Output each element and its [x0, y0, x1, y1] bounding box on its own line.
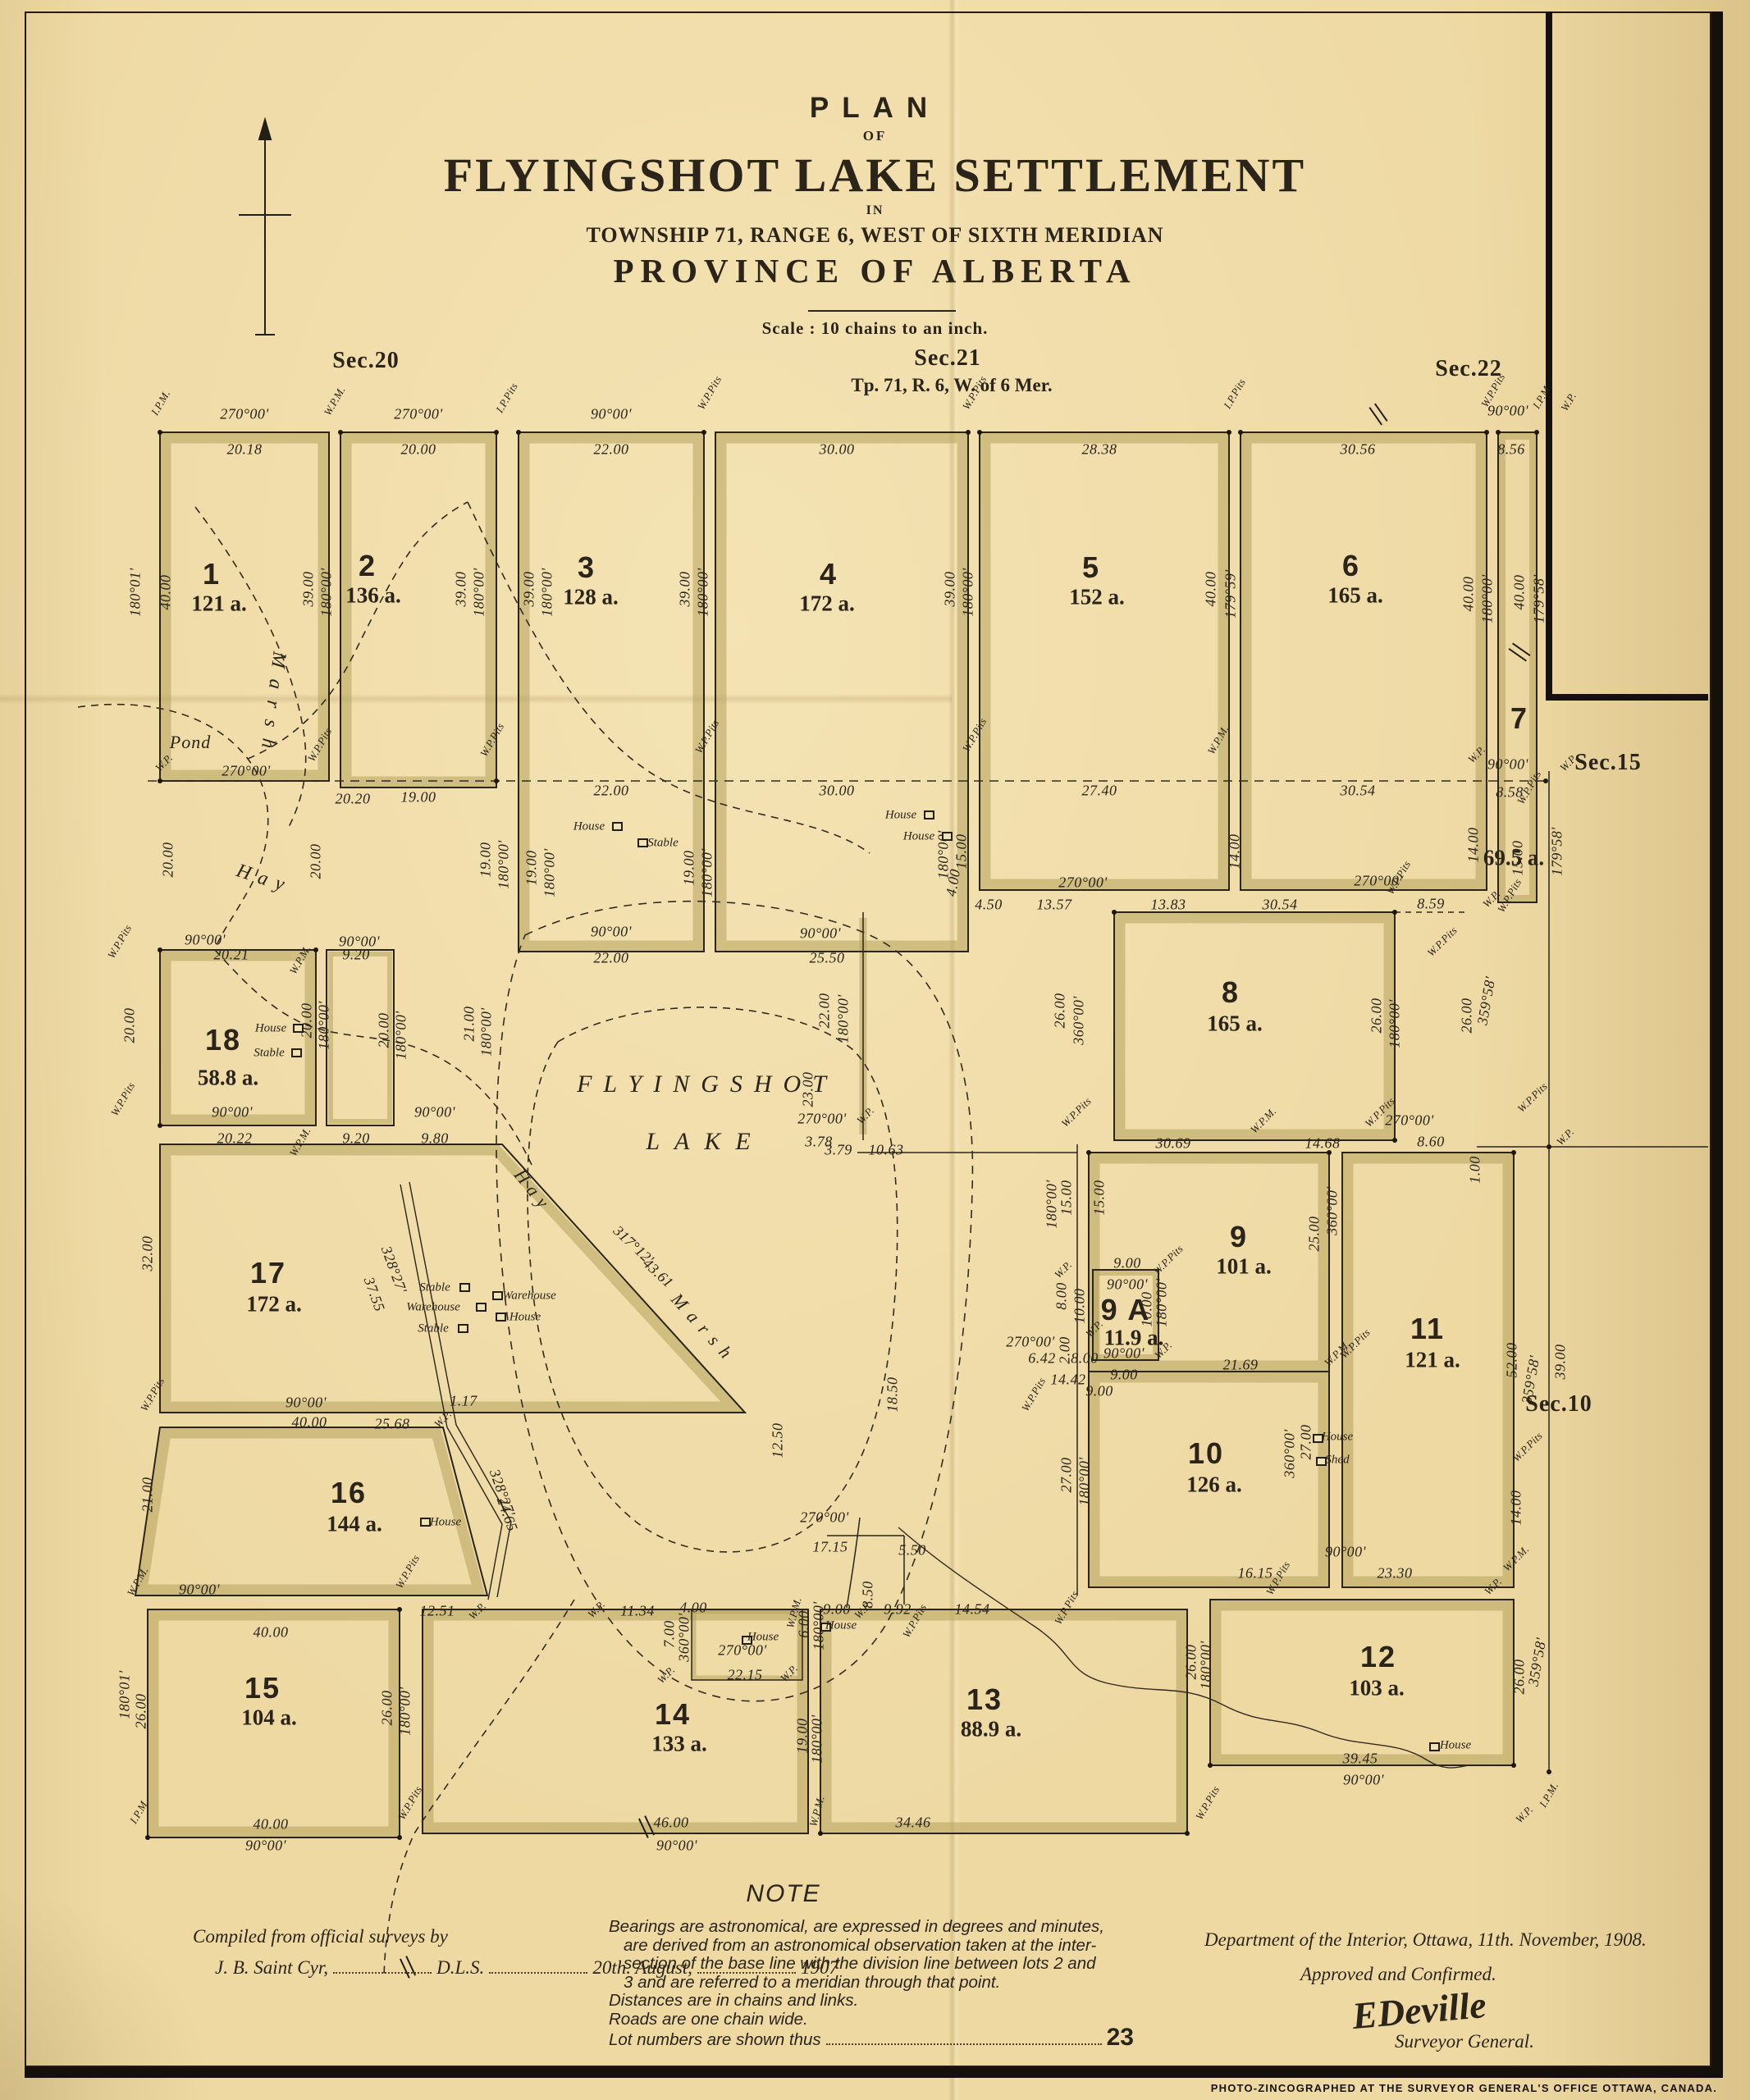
sample-lot-number: 23 — [1107, 2029, 1134, 2047]
dimension-label: 19.00 — [681, 851, 698, 886]
dimension-label: 180°01' — [117, 1670, 134, 1719]
dimension-label: 90°00' — [286, 1395, 327, 1412]
building-square — [942, 832, 953, 841]
lot-number: 17 — [250, 1256, 286, 1290]
place-name: Hay — [509, 1165, 557, 1217]
department-line: Department of the Interior, Ottawa, 11th… — [1204, 1929, 1647, 1951]
place-name: FLYINGSHOT — [577, 1071, 838, 1098]
dimension-label: 24.65 — [493, 1495, 521, 1534]
dimension-label: 39.00 — [1552, 1344, 1570, 1380]
dimension-label: 40.00 — [1460, 577, 1478, 612]
dimension-label: 270°00' — [1385, 1112, 1434, 1130]
dimension-label: 180°00' — [1479, 574, 1496, 623]
imprint-line: PHOTO-ZINCOGRAPHED AT THE SURVEYOR GENER… — [1211, 2082, 1717, 2094]
dimension-label: 21.00 — [461, 1007, 478, 1042]
note-line: Roads are one chain wide. — [609, 2011, 1183, 2029]
dimension-label: 26.00 — [1459, 998, 1476, 1034]
building-label: Stable — [647, 837, 679, 851]
building-label: Warehouse — [502, 1290, 556, 1303]
note-line: are derived from an astronomical observa… — [609, 1937, 1183, 1956]
survey-marker-label: W.P. — [153, 751, 176, 774]
dimension-label: 18.50 — [884, 1377, 902, 1413]
dimension-label: 5.50 — [898, 1542, 926, 1559]
dimension-label: 8.56 — [1497, 441, 1525, 459]
dimension-label: 21.69 — [1223, 1357, 1259, 1374]
dimension-label: 40.00 — [292, 1414, 327, 1431]
survey-marker-label: W.P.Pits — [1510, 1429, 1545, 1464]
dimension-label: 25.00 — [1306, 1217, 1323, 1252]
dotted-leader — [826, 2043, 1102, 2045]
dimension-label: 40.00 — [158, 575, 175, 610]
dimension-label: 23.30 — [1378, 1565, 1413, 1582]
dimension-label: 270°00' — [1006, 1334, 1055, 1351]
dotted-leader — [333, 1972, 432, 1974]
lot-area: 136 a. — [345, 583, 401, 609]
lot-area: 121 a. — [191, 591, 247, 617]
dimension-label: 8.00 — [1053, 1282, 1071, 1310]
dimension-label: 90°00' — [591, 924, 632, 941]
note-line: Bearings are astronomical, are expressed… — [609, 1918, 1183, 1937]
lot-number: 7 — [1510, 701, 1528, 736]
survey-marker-label: W.P.M. — [322, 384, 349, 418]
survey-marker-label: W.P.Pits — [395, 1784, 425, 1823]
dimension-label: 90°00' — [179, 1582, 220, 1599]
dimension-label: 360°00' — [1324, 1186, 1341, 1235]
dimension-label: 20.21 — [214, 947, 249, 964]
dimension-label: 180°00' — [1198, 1641, 1215, 1690]
dimension-label: 30.69 — [1156, 1135, 1191, 1153]
survey-marker-label: W.P.M. — [287, 943, 314, 976]
lot-number: 8 — [1222, 975, 1240, 1010]
survey-marker-label: I.P.M. — [148, 388, 173, 418]
lot-area: 152 a. — [1069, 585, 1125, 610]
dimension-label: 9.92 — [884, 1601, 912, 1618]
dimension-label: 9.20 — [342, 1130, 370, 1148]
dimension-label: 40.00 — [254, 1624, 289, 1641]
survey-marker-label: W.P.Pits — [1150, 1242, 1186, 1277]
building-label: House — [885, 809, 916, 823]
approved-line: Approved and Confirmed. — [1300, 1964, 1496, 1985]
dimension-label: 19.00 — [523, 851, 541, 886]
survey-marker-label: W.P. — [1513, 1803, 1536, 1826]
dimension-label: 22.15 — [728, 1667, 763, 1684]
building-label: House — [430, 1516, 461, 1530]
survey-marker-label: W.P.M. — [1248, 1105, 1279, 1136]
lot-area: 133 a. — [651, 1732, 707, 1757]
dimension-label: 30.54 — [1341, 783, 1376, 800]
dimension-label: 179°58' — [1549, 827, 1566, 876]
lot-area: 165 a. — [1327, 583, 1383, 609]
lot-number: 4 — [820, 557, 838, 591]
building-label: House — [825, 1619, 857, 1633]
survey-marker-label: W.P.Pits — [1019, 1376, 1049, 1414]
dimension-label: 360°00' — [676, 1613, 693, 1662]
dimension-label: 26.00 — [379, 1691, 396, 1726]
dimension-label: 179°59' — [1222, 569, 1240, 619]
survey-marker-label: W.P.Pits — [695, 374, 724, 413]
dimension-label: 14.42 — [1051, 1372, 1086, 1389]
survey-marker-label: W.P.Pits — [477, 721, 507, 760]
surveyor-designation: D.L.S. — [436, 1957, 484, 1979]
dimension-label: 39.00 — [942, 572, 959, 607]
survey-marker-label: I.P.Pits — [1221, 377, 1249, 411]
survey-marker-label: W.P.Pits — [305, 726, 335, 765]
dimension-label: 360°00' — [1071, 996, 1088, 1045]
dimension-label: 90°00' — [656, 1837, 697, 1855]
survey-marker-label: W.P.M. — [806, 1794, 827, 1828]
dimension-label: 43.61 — [639, 1255, 677, 1292]
lot-area: 172 a. — [246, 1292, 302, 1317]
dimension-label: 1.00 — [1467, 1156, 1484, 1184]
section-label: Sec.21 — [914, 345, 980, 372]
lot-area: 69.5 a. — [1483, 846, 1544, 871]
dimension-label: 32.00 — [139, 1236, 157, 1271]
lot-number: 10 — [1188, 1436, 1224, 1471]
survey-marker-label: W.P.Pits — [105, 923, 135, 961]
lot-number: 11 — [1410, 1312, 1445, 1346]
dimension-label: 90°00' — [1487, 756, 1528, 774]
dimension-label: 180°00' — [699, 848, 716, 897]
dimension-label: 13.83 — [1151, 897, 1186, 914]
lot-number: 9 — [1230, 1220, 1248, 1254]
dimension-label: 180°00' — [835, 994, 852, 1043]
dimension-label: 270°00' — [222, 763, 271, 780]
building-label: Stable — [418, 1322, 449, 1336]
compiled-by-line: Compiled from official surveys by — [193, 1926, 448, 1947]
dimension-label: 37.55 — [360, 1275, 388, 1314]
building-label: Stable — [254, 1047, 285, 1061]
survey-date: 20th. August, — [592, 1957, 692, 1979]
dimension-label: 30.00 — [820, 783, 855, 800]
dimension-label: 22.00 — [816, 993, 834, 1029]
survey-marker-label: W.P. — [1558, 390, 1579, 413]
survey-marker-label: W.P.Pits — [1052, 1589, 1081, 1627]
lot-area: 172 a. — [799, 591, 855, 617]
survey-marker-label: W.P.Pits — [1424, 924, 1460, 959]
survey-marker-label: W.P. — [1482, 1575, 1505, 1598]
building-label: House — [1440, 1739, 1471, 1753]
dimension-label: 39.00 — [453, 572, 470, 607]
note-heading: NOTE — [746, 1880, 820, 1908]
dimension-label: 40.00 — [1511, 575, 1528, 610]
lot-area: 165 a. — [1207, 1011, 1263, 1037]
dimension-label: 4.50 — [975, 897, 1003, 914]
building-square — [637, 838, 648, 847]
dimension-label: 26.00 — [1368, 998, 1386, 1034]
survey-marker-label: W.P. — [854, 1104, 877, 1127]
dimension-label: 8.59 — [1417, 896, 1445, 913]
dimension-label: 20.00 — [160, 842, 177, 878]
dimension-label: 30.00 — [820, 441, 855, 459]
dotted-leader — [489, 1972, 587, 1974]
dimension-label: 180°00' — [471, 568, 488, 617]
dimension-label: 40.00 — [1203, 572, 1220, 607]
dimension-label: 26.00 — [1052, 993, 1069, 1029]
survey-marker-label: W.P. — [466, 1600, 489, 1623]
building-square — [476, 1303, 487, 1312]
dimension-label: 21.00 — [139, 1477, 157, 1513]
dimension-label: 8.60 — [1417, 1134, 1445, 1151]
building-label: House — [747, 1631, 779, 1645]
survey-marker-label: W.P. — [585, 1598, 608, 1621]
dimension-label: 15.00 — [1091, 1180, 1108, 1216]
survey-marker-label: W.P.M. — [125, 1564, 152, 1598]
section-label: Sec.10 — [1525, 1391, 1592, 1417]
dimension-label: 12.50 — [770, 1423, 787, 1459]
dimension-label: 180°00' — [539, 568, 556, 617]
lot-number: 2 — [359, 549, 377, 583]
dimension-label: 13.57 — [1037, 897, 1072, 914]
survey-year: 1907 — [801, 1957, 838, 1979]
dimension-label: 180°00' — [318, 568, 336, 617]
building-label: House — [573, 820, 605, 834]
survey-marker-label: W.P.Pits — [692, 718, 722, 756]
survey-marker-label: W.P. — [778, 1662, 801, 1685]
lot-area: 126 a. — [1186, 1472, 1242, 1498]
dimension-label: 9.00 — [1113, 1255, 1141, 1272]
dimension-label: 180°00' — [1076, 1457, 1094, 1506]
dimension-label: 360°00' — [1282, 1429, 1299, 1478]
building-label: House — [1322, 1431, 1353, 1445]
dimension-label: 90°00' — [1107, 1276, 1148, 1294]
dimension-label: 10.63 — [869, 1142, 904, 1159]
dimension-label: 14.68 — [1305, 1135, 1341, 1153]
section-label: Sec.22 — [1435, 356, 1501, 382]
building-label: Warehouse — [406, 1301, 460, 1315]
dimension-label: 28.38 — [1082, 441, 1117, 459]
note-lot-number-line: Lot numbers are shown thus 23 — [609, 2029, 1134, 2050]
lot-area: 11.9 a. — [1104, 1326, 1164, 1351]
map-labels-layer: 270°00'20.18270°00'20.0090°00'22.0030.00… — [0, 0, 1750, 2100]
section-label: Sec.20 — [332, 348, 399, 374]
dimension-label: 39.00 — [677, 572, 694, 607]
dimension-label: 14.00 — [1227, 834, 1244, 870]
dimension-label: 16.15 — [1238, 1565, 1273, 1582]
survey-marker-label: W.P. — [1465, 743, 1488, 766]
lot-area: 128 a. — [563, 585, 619, 610]
dimension-label: 26.00 — [133, 1694, 150, 1729]
dimension-label: 15.00 — [1058, 1180, 1076, 1216]
building-label: Shed — [1325, 1454, 1349, 1468]
survey-marker-label: I.P.M. — [127, 1796, 152, 1827]
dimension-label: 90°00' — [1487, 403, 1528, 420]
survey-marker-label: I.P.Pits — [493, 381, 521, 415]
dimension-label: 20.00 — [299, 1003, 316, 1039]
survey-marker-label: W.P.Pits — [138, 1376, 167, 1414]
dimension-label: 22.00 — [594, 950, 629, 967]
dimension-label: 14.54 — [955, 1601, 990, 1618]
dimension-label: 90°00' — [591, 406, 632, 423]
dimension-label: 25.50 — [810, 950, 845, 967]
dimension-label: 180°01' — [127, 568, 144, 617]
dimension-label: 9.00 — [823, 1601, 851, 1618]
dimension-label: 359°58' — [1524, 1637, 1550, 1687]
dimension-label: 90°00' — [245, 1837, 286, 1855]
dimension-label: 180°00' — [397, 1687, 414, 1736]
building-square — [496, 1312, 506, 1322]
dimension-label: 180°00' — [496, 840, 513, 889]
lot-number: 13 — [966, 1682, 1003, 1717]
survey-marker-label: W.P. — [655, 1664, 678, 1687]
lot-number: 18 — [205, 1023, 241, 1057]
survey-marker-label: W.P. — [1052, 1258, 1075, 1281]
dimension-label: 180°00' — [316, 1001, 333, 1050]
dimension-label: 180°00' — [695, 568, 712, 617]
lot-area: 144 a. — [327, 1512, 382, 1537]
dimension-label: 15.00 — [953, 834, 971, 870]
dimension-label: 8.00 — [1071, 1350, 1099, 1367]
dimension-label: 20.18 — [227, 441, 263, 459]
dimension-label: 270°00' — [800, 1509, 849, 1527]
dimension-label: 46.00 — [654, 1815, 689, 1832]
dimension-label: 17.15 — [813, 1539, 848, 1556]
building-label: Stable — [419, 1281, 450, 1295]
lot-number: 12 — [1360, 1640, 1396, 1674]
dimension-label: 20.00 — [376, 1013, 393, 1048]
dimension-label: 30.54 — [1263, 897, 1298, 914]
surveyor-credit-line: J. B. Saint Cyr, D.L.S. 20th. August, 19… — [215, 1957, 838, 1979]
dimension-label: 22.00 — [594, 441, 629, 459]
dimension-label: 12.51 — [420, 1603, 455, 1620]
lot-area: 121 a. — [1405, 1348, 1460, 1373]
lot-number: 16 — [331, 1476, 367, 1510]
dimension-label: 90°00' — [414, 1104, 455, 1121]
lot-number: 9 A — [1101, 1293, 1151, 1327]
place-name: Pond — [170, 732, 211, 753]
dimension-label: 9.00 — [1110, 1367, 1138, 1384]
dimension-label: 22.00 — [594, 783, 629, 800]
dimension-label: 9.00 — [1085, 1383, 1113, 1400]
dimension-label: 20.00 — [121, 1008, 139, 1043]
dimension-label: 180°00' — [478, 1007, 496, 1057]
building-label: House — [509, 1311, 541, 1325]
dimension-label: 270°00' — [1058, 874, 1108, 892]
lot-number: 14 — [655, 1697, 691, 1732]
dimension-label: 27.40 — [1082, 783, 1117, 800]
survey-marker-label: W.P.Pits — [960, 716, 989, 755]
dimension-label: 19.00 — [401, 789, 436, 806]
building-square — [612, 822, 623, 831]
dimension-label: 34.46 — [896, 1815, 931, 1832]
dotted-leader — [697, 1972, 796, 1974]
survey-marker-label: W.P.Pits — [393, 1553, 423, 1591]
dimension-label: 19.00 — [477, 842, 495, 878]
survey-marker-label: W.P.M. — [287, 1125, 314, 1158]
dimension-label: 180°00' — [393, 1011, 410, 1060]
building-square — [492, 1291, 503, 1300]
place-name: LAKE — [646, 1128, 765, 1156]
survey-marker-label: W.P. — [432, 1408, 455, 1431]
dimension-label: 10.00 — [1071, 1289, 1089, 1324]
dimension-label: 90°00' — [1343, 1772, 1384, 1789]
note-body: Bearings are astronomical, are expressed… — [609, 1918, 1183, 2050]
building-square — [1429, 1742, 1440, 1751]
dimension-label: 180°00' — [1387, 999, 1404, 1048]
lot-number: 15 — [244, 1671, 281, 1705]
survey-marker-label: W.P.Pits — [1193, 1784, 1222, 1823]
lot-number: 3 — [578, 550, 596, 585]
dimension-label: 27.00 — [1058, 1458, 1076, 1493]
dimension-label: 90°00' — [212, 1104, 253, 1121]
dimension-label: 270°00' — [797, 1111, 847, 1128]
lot-number: 1 — [203, 557, 221, 591]
survey-marker-label: W.P.Pits — [1515, 1080, 1550, 1115]
building-label: House — [903, 830, 934, 844]
dimension-label: 20.00 — [308, 844, 325, 879]
dimension-label: 25.68 — [375, 1416, 410, 1433]
dimension-label: 14.00 — [1465, 828, 1483, 863]
survey-marker-label: W.P.Pits — [1058, 1094, 1094, 1130]
building-square — [291, 1048, 302, 1057]
dimension-label: 1.17 — [450, 1393, 477, 1410]
dimension-label: 39.00 — [300, 572, 318, 607]
survey-marker-label: W.P.Pits — [108, 1080, 138, 1119]
dimension-label: 20.20 — [336, 791, 371, 808]
dimension-label: 179°58' — [1531, 574, 1548, 623]
building-square — [459, 1283, 470, 1292]
lot-number: 6 — [1342, 549, 1360, 583]
lot-area: 104 a. — [241, 1705, 297, 1731]
dimension-label: 40.00 — [254, 1816, 289, 1833]
lot-number: 5 — [1082, 550, 1100, 585]
place-name: Hay — [234, 860, 295, 898]
dimension-label: 270°00' — [394, 406, 443, 423]
dimension-label: 328°27' — [377, 1244, 410, 1295]
section-label: Sec.15 — [1574, 750, 1641, 776]
dimension-label: 90°00' — [800, 925, 841, 943]
section-sublabel: Tp. 71, R. 6, W. of 6 Mer. — [851, 375, 1052, 396]
dimension-label: 11.34 — [620, 1603, 655, 1620]
survey-marker-label: W.P.M. — [1205, 723, 1232, 756]
dimension-label: 180°00' — [960, 568, 977, 617]
note-lot-line-text: Lot numbers are shown thus — [609, 2031, 821, 2050]
dimension-label: 52.00 — [1504, 1343, 1521, 1378]
place-name: Marsh — [666, 1289, 741, 1368]
dimension-label: 6.42 — [1028, 1350, 1056, 1367]
dimension-label: 30.56 — [1341, 441, 1376, 459]
survey-marker-label: I.P.M. — [1537, 1780, 1561, 1810]
dimension-label: 9.80 — [421, 1130, 449, 1148]
dimension-label: 180°00' — [1154, 1278, 1171, 1327]
building-square — [924, 810, 934, 819]
dimension-label: 20.00 — [401, 441, 436, 459]
dimension-label: 3.79 — [825, 1142, 852, 1159]
survey-marker-label: I.P.M. — [1530, 381, 1555, 412]
dimension-label: 359°58' — [1474, 975, 1499, 1026]
surveyor-name: J. B. Saint Cyr, — [215, 1957, 328, 1979]
place-name: Marsh — [255, 651, 290, 761]
dimension-label: 39.00 — [521, 572, 538, 607]
lot-area: 88.9 a. — [961, 1717, 1021, 1742]
survey-plan-sheet: PLAN OF FLYINGSHOT LAKE SETTLEMENT IN TO… — [0, 0, 1750, 2100]
surveyor-general-title: Surveyor General. — [1395, 2031, 1534, 2052]
dimension-label: 90°00' — [339, 934, 380, 951]
lot-area: 103 a. — [1349, 1676, 1405, 1701]
note-line: Distances are in chains and links. — [609, 1992, 1183, 2011]
dimension-label: 14.00 — [1508, 1491, 1525, 1526]
building-label: House — [255, 1022, 286, 1036]
dimension-label: 180°00' — [541, 848, 559, 897]
building-square — [458, 1324, 468, 1333]
dimension-label: 270°00' — [220, 406, 269, 423]
lot-area: 101 a. — [1216, 1254, 1272, 1280]
survey-marker-label: W.P. — [1554, 1125, 1577, 1148]
dimension-label: 20.22 — [217, 1130, 253, 1148]
survey-marker-label: W.P.M. — [1501, 1543, 1532, 1574]
lot-area: 58.8 a. — [198, 1066, 258, 1091]
dimension-label: 180°00' — [1044, 1180, 1061, 1229]
dimension-label: 180°00' — [809, 1714, 826, 1764]
